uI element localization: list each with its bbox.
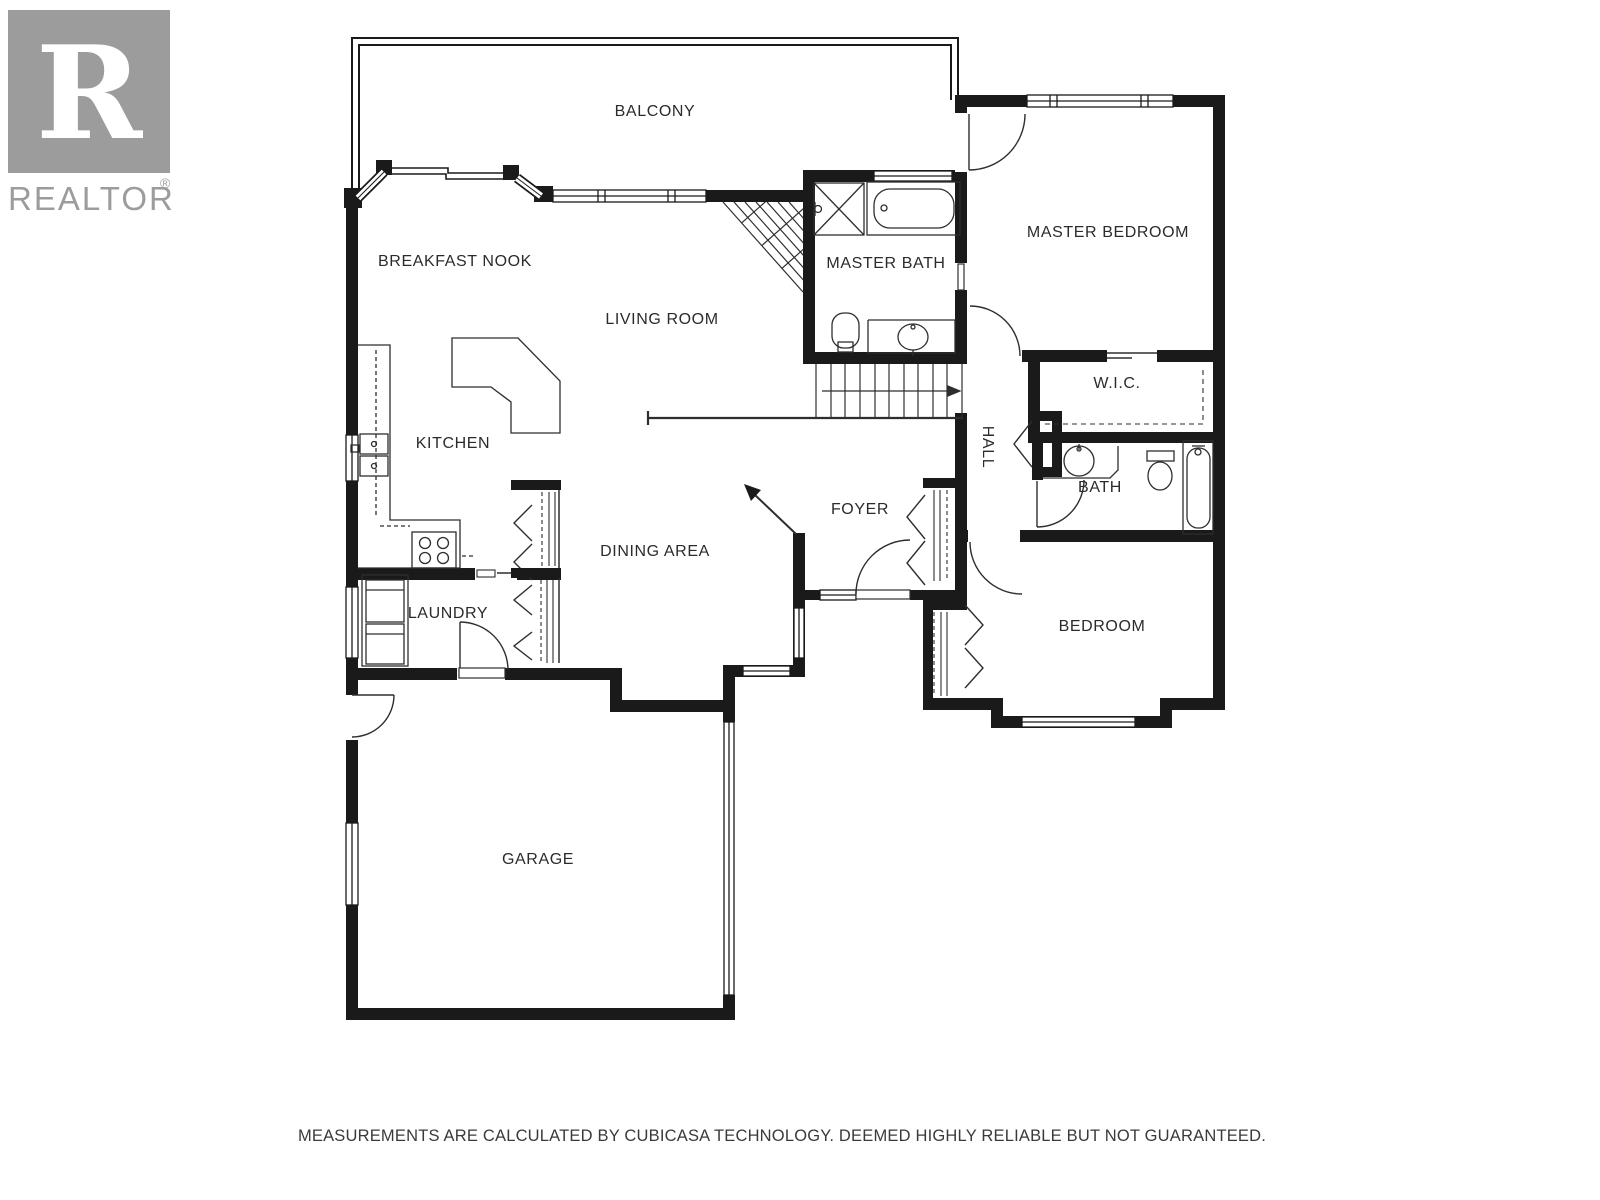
room-label-master-bedroom: MASTER BEDROOM [1027, 224, 1189, 241]
window-master-bath [874, 171, 952, 181]
room-label-breakfast-nook: BREAKFAST NOOK [378, 253, 532, 270]
bay-top-rail [390, 168, 513, 179]
door-bedroom-closet-bifold [965, 605, 983, 688]
master-vanity-sink-icon [868, 320, 955, 356]
room-label-laundry: LAUNDRY [408, 605, 488, 622]
door-balcony [969, 114, 1025, 170]
door-kitchen-laundry-pocket [477, 570, 515, 577]
floorplan-page: R REALTOR ® [0, 0, 1600, 1200]
window-entry-south [743, 666, 790, 676]
door-bedroom [970, 542, 1022, 594]
room-label-bedroom: BEDROOM [1059, 618, 1146, 635]
window-foyer-sidelight [820, 590, 856, 600]
room-label-wic: W.I.C. [1093, 375, 1140, 392]
window-bedroom-bay [1022, 717, 1135, 727]
master-toilet-icon [832, 313, 859, 352]
door-laundry-closet-bifold [514, 585, 532, 660]
door-front-entry [856, 540, 910, 599]
realtor-logo-letter: R [36, 19, 144, 169]
stair-railing [648, 411, 963, 425]
realtor-wordmark: REALTOR [8, 180, 175, 217]
entry-direction-arrow [744, 484, 796, 534]
room-labels: BALCONY MASTER BEDROOM BREAKFAST NOOK MA… [378, 103, 1189, 868]
door-wic-sliding [1107, 353, 1157, 358]
bath-toilet-icon [1147, 451, 1174, 490]
window-entry-east [794, 608, 804, 658]
door-bath [1037, 480, 1084, 527]
room-label-hall: HALL [979, 426, 996, 468]
room-label-balcony: BALCONY [615, 103, 696, 120]
registered-trademark-icon: ® [160, 175, 171, 191]
stairs-direction-arrow-icon [948, 386, 960, 396]
shower-icon [814, 183, 864, 235]
window-garage [346, 823, 358, 905]
stove-icon [412, 532, 456, 568]
room-label-bath: BATH [1078, 479, 1122, 496]
door-laundry [459, 622, 508, 678]
disclaimer-text: MEASUREMENTS ARE CALCULATED BY CUBICASA … [298, 1127, 1266, 1145]
window-kitchen [346, 435, 358, 481]
door-master-bath-pocket [958, 264, 964, 290]
room-label-foyer: FOYER [831, 501, 889, 518]
room-label-kitchen: KITCHEN [416, 435, 490, 452]
stairwell-hatch [700, 162, 869, 320]
window-breakfast-band [553, 190, 706, 202]
window-laundry [346, 587, 358, 658]
stairs-up [816, 364, 962, 417]
door-garage-side [352, 695, 394, 737]
bath-tub-icon [1183, 441, 1213, 534]
room-label-dining-area: DINING AREA [600, 543, 710, 560]
room-label-living-room: LIVING ROOM [605, 311, 718, 328]
room-label-garage: GARAGE [502, 851, 574, 868]
garage-door [724, 722, 734, 995]
kitchen-island [452, 338, 560, 433]
bathtub-icon [867, 182, 960, 235]
room-label-master-bath: MASTER BATH [826, 255, 945, 272]
washer-dryer-icon [362, 575, 408, 666]
floorplan-svg: R REALTOR ® [0, 0, 1600, 1200]
realtor-logo: R REALTOR ® [8, 10, 175, 217]
window-master-bedroom [1027, 95, 1173, 107]
door-master-bedroom [970, 306, 1020, 356]
